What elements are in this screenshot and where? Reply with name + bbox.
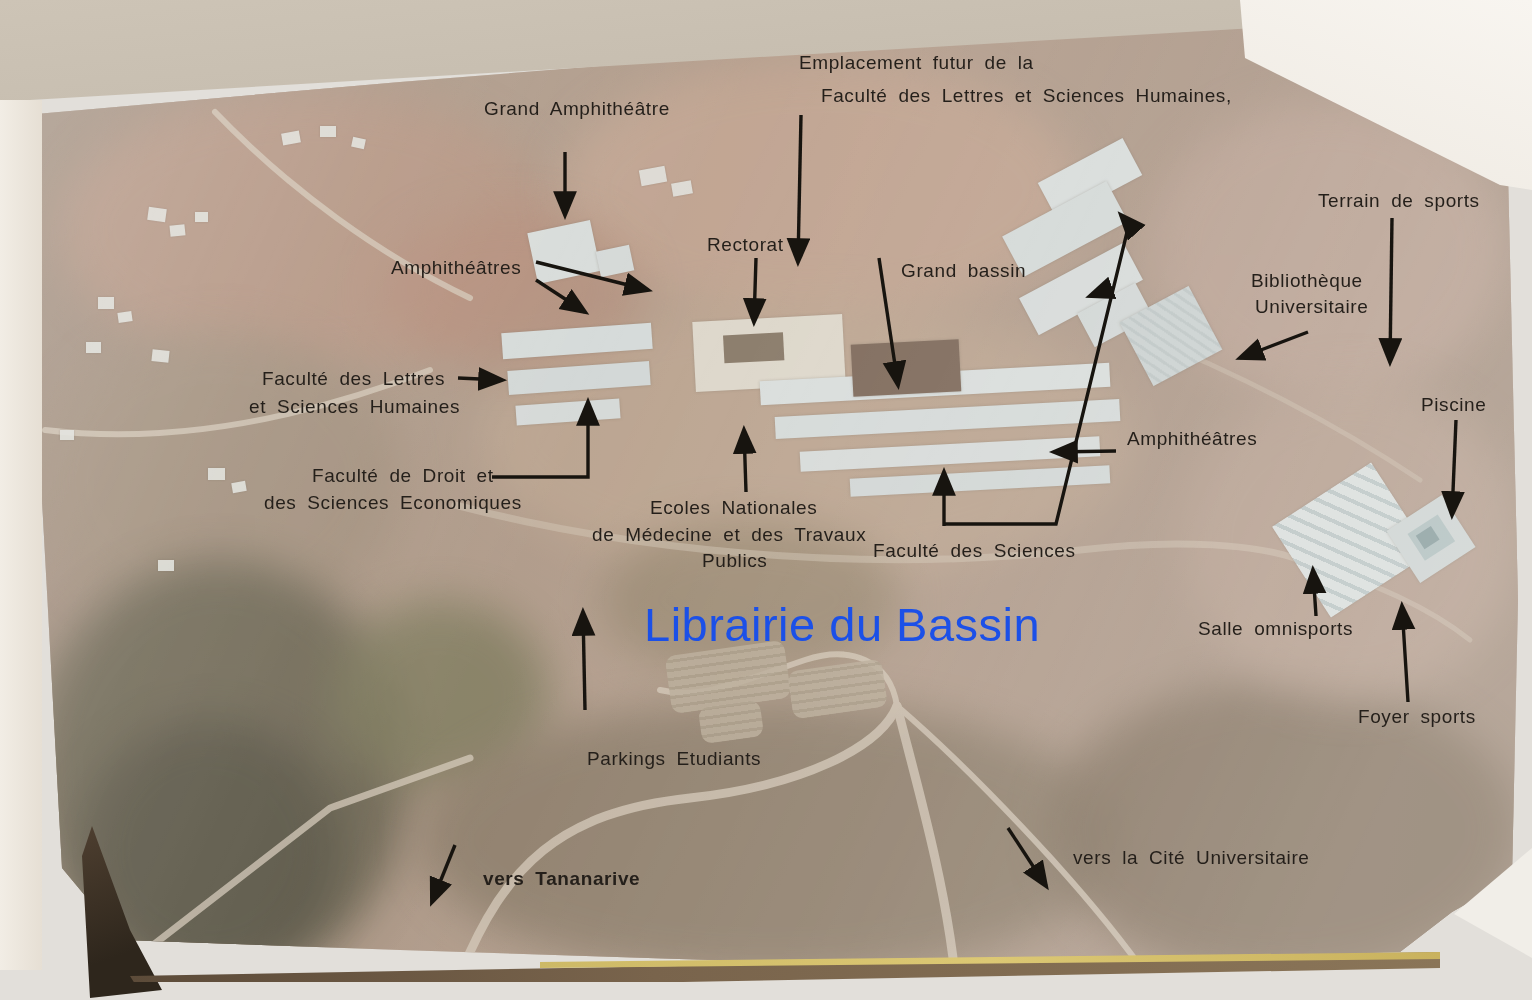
piscine-pool xyxy=(1407,514,1455,560)
page-edge-left xyxy=(0,100,42,970)
label-ecoles-line3: Publics xyxy=(702,551,767,570)
label-grand-bassin: Grand bassin xyxy=(901,261,1026,280)
label-ecoles-line2: de Médecine et des Travaux xyxy=(592,525,866,544)
label-bibliotheque-line1: Bibliothèque xyxy=(1251,271,1363,290)
watermark-text: Librairie du Bassin xyxy=(644,601,1040,648)
label-foyer-sports: Foyer sports xyxy=(1358,707,1476,726)
building xyxy=(208,468,225,480)
building xyxy=(151,349,169,363)
label-salle-omnisports: Salle omnisports xyxy=(1198,619,1353,638)
piscine-water xyxy=(1416,526,1440,549)
label-emplacement-line2: Faculté des Lettres et Sciences Humaines… xyxy=(821,86,1232,105)
label-rectorat: Rectorat xyxy=(707,235,784,254)
label-amphitheatres-right: Amphithéâtres xyxy=(1127,429,1257,448)
book-photo-page: Emplacement futur de la Faculté des Lett… xyxy=(0,0,1532,1000)
terrain-patch xyxy=(420,700,1120,980)
building xyxy=(60,430,74,440)
label-faculte-sciences: Faculté des Sciences xyxy=(873,541,1076,560)
label-grand-amphitheatre: Grand Amphithéâtre xyxy=(484,99,670,118)
building xyxy=(117,311,132,323)
label-amphitheatres-left: Amphithéâtres xyxy=(391,258,521,277)
building xyxy=(320,126,336,137)
label-ecoles-line1: Ecoles Nationales xyxy=(650,498,817,517)
label-terrain-de-sports: Terrain de sports xyxy=(1318,191,1480,210)
label-piscine: Piscine xyxy=(1421,395,1486,414)
building xyxy=(195,212,208,222)
label-faculte-lettres-line2: et Sciences Humaines xyxy=(249,397,460,416)
building xyxy=(158,560,174,571)
label-vers-tananarive: vers Tananarive xyxy=(483,869,640,888)
building xyxy=(98,297,114,309)
label-faculte-droit-line1: Faculté de Droit et xyxy=(312,466,494,485)
building xyxy=(86,342,101,353)
building xyxy=(147,207,167,222)
grand-bassin-pool xyxy=(851,339,962,397)
label-emplacement-line1: Emplacement futur de la xyxy=(799,53,1034,72)
label-faculte-lettres-line1: Faculté des Lettres xyxy=(262,369,445,388)
label-bibliotheque-line2: Universitaire xyxy=(1255,297,1368,316)
rectorat-courtyard xyxy=(723,332,784,363)
building xyxy=(169,224,185,237)
label-parkings-etudiants: Parkings Etudiants xyxy=(587,749,761,768)
label-faculte-droit-line2: des Sciences Economiques xyxy=(264,493,522,512)
label-vers-cite-universitaire: vers la Cité Universitaire xyxy=(1073,848,1310,867)
